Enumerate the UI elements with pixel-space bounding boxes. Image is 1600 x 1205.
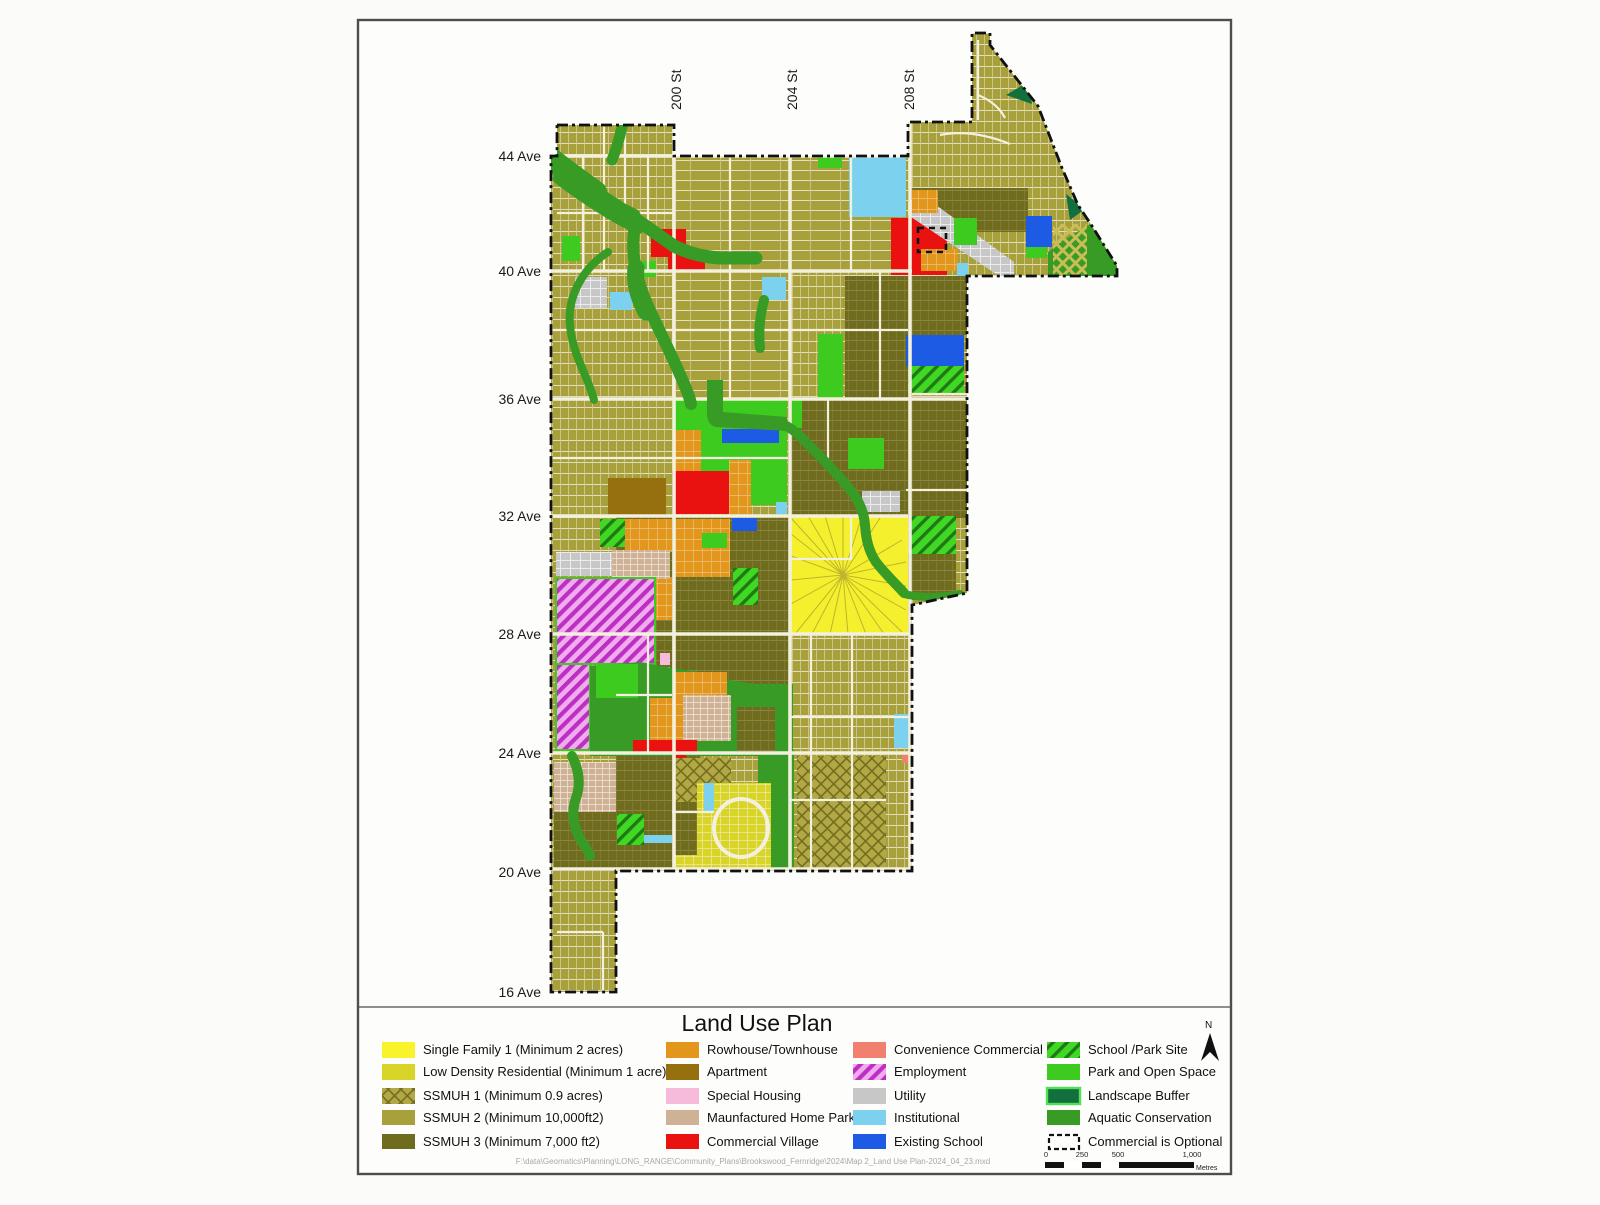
svg-text:0: 0	[1044, 1150, 1048, 1159]
svg-text:Commercial is Optional: Commercial is Optional	[1088, 1134, 1222, 1149]
svg-text:SSMUH 1 (Minimum 0.9 acres): SSMUH 1 (Minimum 0.9 acres)	[423, 1088, 603, 1103]
svg-text:Aquatic Conservation: Aquatic Conservation	[1088, 1110, 1212, 1125]
svg-text:Existing School: Existing School	[894, 1134, 983, 1149]
svg-text:Maunfactured Home Park: Maunfactured Home Park	[707, 1110, 856, 1125]
svg-text:16 Ave: 16 Ave	[498, 984, 541, 1000]
svg-text:Landscape Buffer: Landscape Buffer	[1088, 1088, 1190, 1103]
svg-text:1,000: 1,000	[1183, 1150, 1202, 1159]
svg-text:44 Ave: 44 Ave	[498, 148, 541, 164]
svg-text:500: 500	[1112, 1150, 1125, 1159]
svg-text:Rowhouse/Townhouse: Rowhouse/Townhouse	[707, 1042, 838, 1057]
svg-text:School /Park Site: School /Park Site	[1088, 1042, 1188, 1057]
svg-text:32 Ave: 32 Ave	[498, 508, 541, 524]
svg-text:40 Ave: 40 Ave	[498, 263, 541, 279]
svg-text:200 St: 200 St	[668, 69, 684, 110]
svg-text:F:\data\Geomatics\Planning\LON: F:\data\Geomatics\Planning\LONG_RANGE\Co…	[516, 1157, 990, 1166]
svg-text:N: N	[1205, 1020, 1212, 1031]
svg-text:Land Use Plan: Land Use Plan	[682, 1010, 833, 1036]
svg-text:20 Ave: 20 Ave	[498, 864, 541, 880]
svg-text:250: 250	[1076, 1150, 1089, 1159]
svg-text:Special Housing: Special Housing	[707, 1088, 801, 1103]
svg-text:24 Ave: 24 Ave	[498, 745, 541, 761]
svg-text:204 St: 204 St	[784, 69, 800, 110]
svg-text:Low Density Residential (Minim: Low Density Residential (Minimum 1 acre)	[423, 1064, 666, 1079]
svg-text:36 Ave: 36 Ave	[498, 391, 541, 407]
svg-text:Park and Open Space: Park and Open Space	[1088, 1064, 1216, 1079]
svg-text:Convenience Commercial: Convenience Commercial	[894, 1042, 1043, 1057]
svg-text:SSMUH 3 (Minimum 7,000 ft2): SSMUH 3 (Minimum 7,000 ft2)	[423, 1134, 600, 1149]
svg-text:Utility: Utility	[894, 1088, 926, 1103]
svg-text:Apartment: Apartment	[707, 1064, 767, 1079]
svg-text:Employment: Employment	[894, 1064, 967, 1079]
svg-text:28 Ave: 28 Ave	[498, 626, 541, 642]
svg-text:208 St: 208 St	[901, 69, 917, 110]
svg-text:Metres: Metres	[1196, 1165, 1218, 1172]
svg-text:Institutional: Institutional	[894, 1110, 960, 1125]
svg-text:Single Family 1 (Minimum 2 acr: Single Family 1 (Minimum 2 acres)	[423, 1042, 623, 1057]
svg-text:Commercial Village: Commercial Village	[707, 1134, 819, 1149]
svg-text:SSMUH 2 (Minimum 10,000ft2): SSMUH 2 (Minimum 10,000ft2)	[423, 1110, 604, 1125]
